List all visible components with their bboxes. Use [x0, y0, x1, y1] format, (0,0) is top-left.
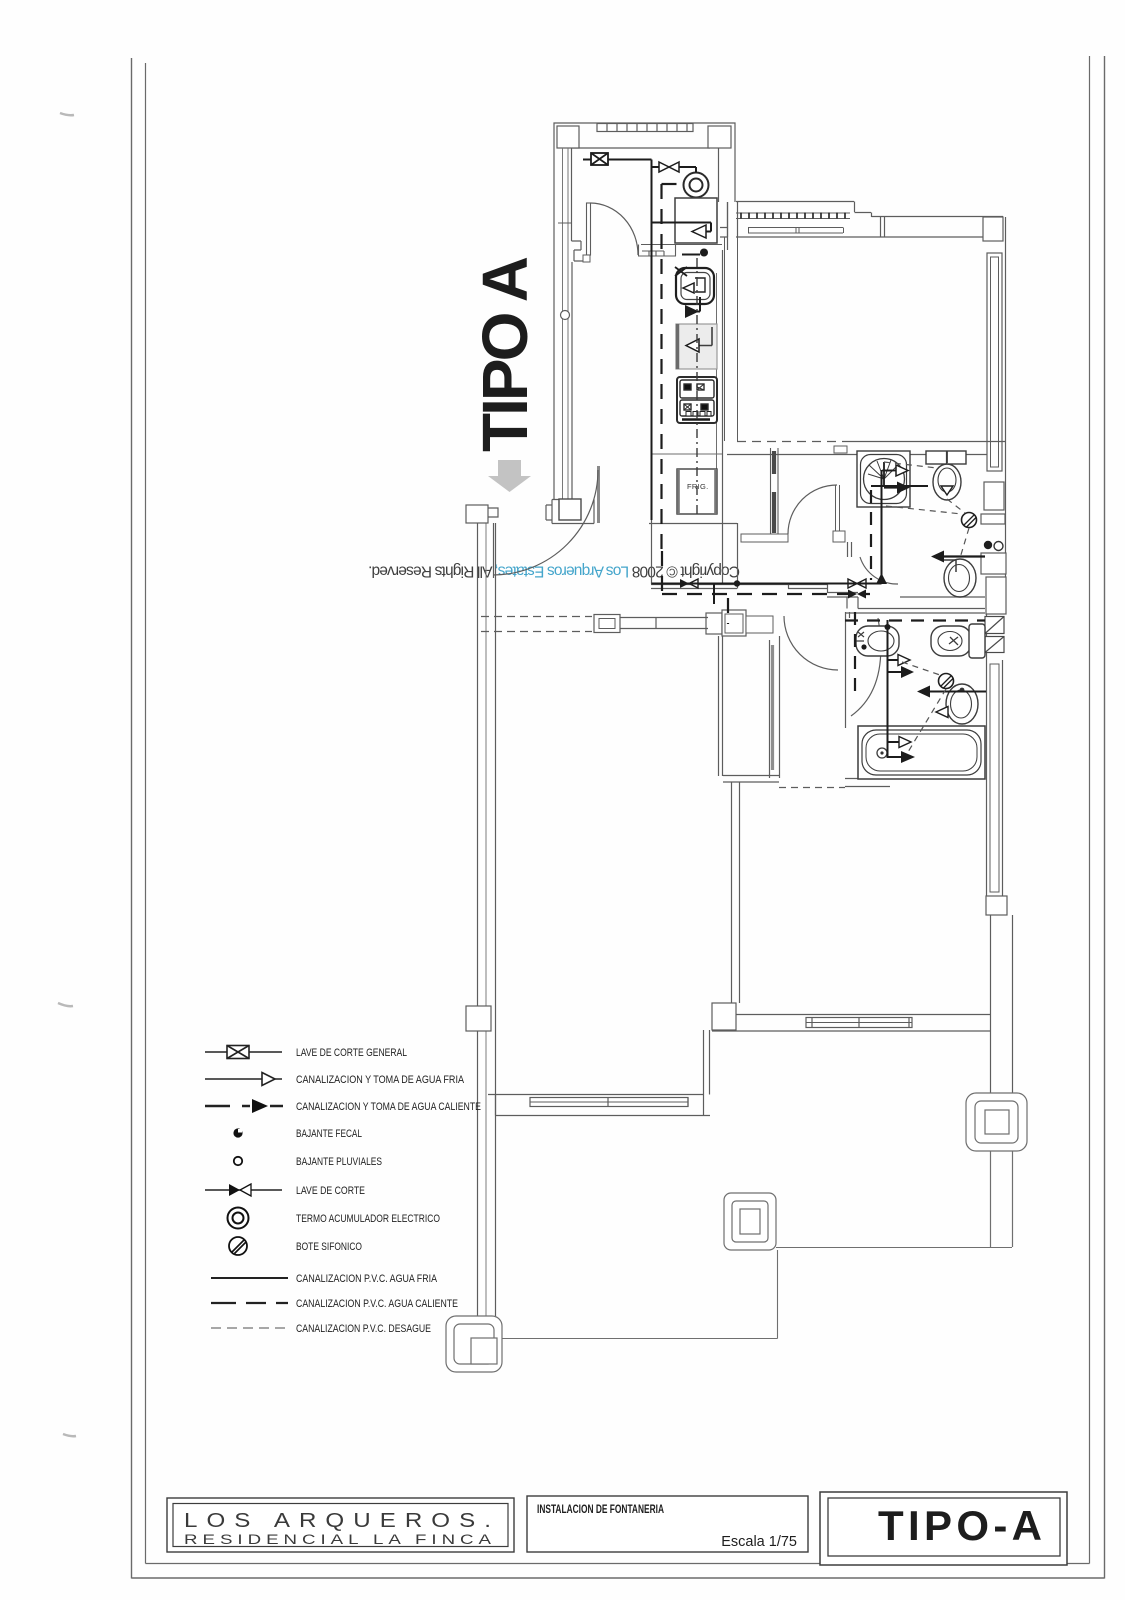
svg-text:CANALIZACION P.V.C. DESAGUE: CANALIZACION P.V.C. DESAGUE: [296, 1323, 431, 1335]
svg-text:CANALIZACION P.V.C. AGUA CA: CANALIZACION P.V.C. AGUA CALIENTE: [296, 1298, 458, 1310]
svg-text:FRIG.: FRIG.: [687, 482, 709, 491]
svg-text:CANALIZACION Y TOMA DE AGU: CANALIZACION Y TOMA DE AGUA CALIENTE: [296, 1101, 481, 1113]
svg-text:Escala 1/75: Escala 1/75: [721, 1534, 797, 1550]
svg-text:LAVE DE CORTE GENERAL: LAVE DE CORTE GENERAL: [296, 1047, 407, 1059]
svg-text:CANALIZACION Y TOMA DE AGU: CANALIZACION Y TOMA DE AGUA FRIA: [296, 1074, 465, 1086]
svg-text:CANALIZACION P.V.C. AGUA FR: CANALIZACION P.V.C. AGUA FRIA: [296, 1273, 438, 1285]
svg-text:RESIDENCIAL LA FINCA: RESIDENCIAL LA FINCA: [184, 1532, 496, 1547]
svg-text:INSTALACION DE FONTANERIA: INSTALACION DE FONTANERIA: [537, 1504, 664, 1516]
svg-text:LAVE DE CORTE: LAVE DE CORTE: [296, 1185, 365, 1197]
svg-text:BAJANTE FECAL: BAJANTE FECAL: [296, 1128, 362, 1140]
svg-text:TERMO ACUMULADOR ELECTRICO: TERMO ACUMULADOR ELECTRICO: [296, 1213, 440, 1225]
svg-text:TIPO-A: TIPO-A: [878, 1502, 1044, 1549]
svg-text:Copyright © 2008 Los Arqueros: Copyright © 2008 Los Arqueros Estates, A…: [368, 563, 740, 580]
svg-text:LOS ARQUEROS.: LOS ARQUEROS.: [184, 1510, 500, 1532]
svg-text:TIPO A: TIPO A: [469, 256, 541, 452]
svg-text:BAJANTE PLUVIALES: BAJANTE PLUVIALES: [296, 1156, 382, 1168]
svg-text:BOTE SIFONICO: BOTE SIFONICO: [296, 1241, 362, 1253]
